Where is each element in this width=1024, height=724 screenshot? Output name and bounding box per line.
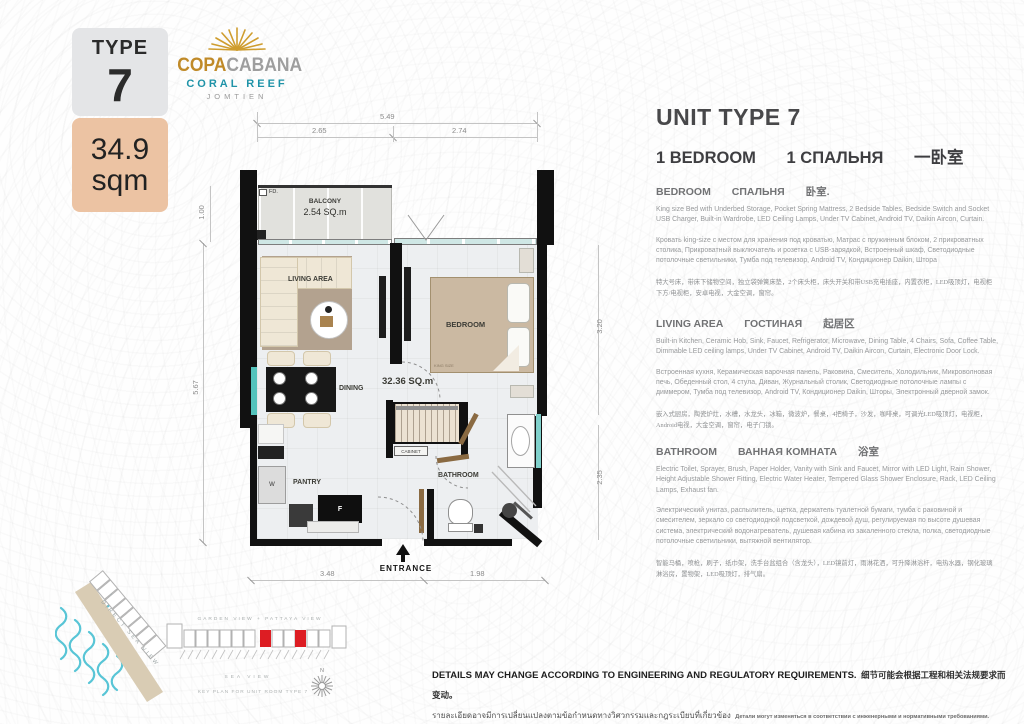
heading-ru: СПАЛЬНЯ <box>732 186 785 198</box>
dim-top-right: 2.74 <box>452 126 467 135</box>
section-text-en: Built-in Kitchen, Ceramic Hob, Sink, Fau… <box>656 337 998 358</box>
dim-right-bedroom: 3.20 <box>595 319 604 334</box>
disclaimer-ru: Детали могут изменяться в соответствии с… <box>735 714 989 720</box>
area-value: 34.9 <box>91 134 149 166</box>
dim-right-bathroom: 2.35 <box>595 470 604 485</box>
section-bathroom: BATHROOM ВАННАЯ КОМНАТА 浴室 Electric Toil… <box>656 444 998 580</box>
disclaimer-en: DETAILS MAY CHANGE ACCORDING TO ENGINEER… <box>432 670 857 681</box>
keyplan-caption: KEY PLAN FOR UNIT ROOM TYPE 7 <box>198 689 308 695</box>
heading-en: BEDROOM <box>656 186 711 198</box>
type-label: TYPE <box>92 37 148 60</box>
section-text-zh: 智能马桶，喷枪，刷子，纸巾架，洗手台盆组合（含龙头），LED镜前灯，雨淋花洒，可… <box>656 558 998 580</box>
section-heading: LIVING AREA ГОСТИНАЯ 起居区 <box>656 316 998 331</box>
dim-top-left: 2.65 <box>312 126 327 135</box>
type-number: 7 <box>107 62 133 108</box>
heading-zh: 浴室 <box>858 446 879 458</box>
building-row-horizontal <box>167 624 346 648</box>
section-text-en: Electric Toilet, Sprayer, Brush, Paper H… <box>656 465 998 496</box>
section-living-area: LIVING AREA ГОСТИНАЯ 起居区 Built-in Kitche… <box>656 316 998 431</box>
dim-ext <box>393 126 394 142</box>
dim-line <box>257 123 537 124</box>
bathroom-door-arc <box>436 456 468 488</box>
shower-glass <box>492 466 536 512</box>
section-text-zh: 嵌入式厨房，陶瓷炉灶，水槽，水龙头，冰箱，微波炉，餐桌，4把椅子，沙发，咖啡桌，… <box>656 409 998 431</box>
logo-name-silver: CABANA <box>226 55 302 76</box>
entrance-door-arc <box>378 497 423 542</box>
garden-view-label: GARDEN VIEW + PATTAYA VIEW <box>198 616 323 622</box>
logo-jomtien: JOMTIEN <box>172 92 302 101</box>
unit-type-badge: TYPE 7 <box>72 28 168 116</box>
dim-line <box>257 137 393 138</box>
building-hatch <box>180 650 329 659</box>
sunburst-icon <box>172 26 302 52</box>
key-plan: DIRECT SEA VIEW GARDEN VIEW + PATTAYA VI… <box>55 568 405 724</box>
dim-left-main: 5.67 <box>191 380 200 395</box>
subtitle-ru: 1 СПАЛЬНЯ <box>787 149 884 167</box>
unit-subtitle: 1 BEDROOM 1 СПАЛЬНЯ 一卧室 <box>656 144 990 168</box>
heading-ru: ВАННАЯ КОМНАТА <box>738 446 837 458</box>
bedroom-door-arc <box>402 362 440 400</box>
entrance-arrow-stem <box>401 554 405 562</box>
disclaimer: DETAILS MAY CHANGE ACCORDING TO ENGINEER… <box>432 664 1007 724</box>
sea-view-label: SEA VIEW <box>225 674 272 680</box>
area-unit: sqm <box>92 165 149 197</box>
plan-annotations <box>240 170 560 580</box>
highlighted-unit <box>295 630 306 647</box>
disclaimer-line1: DETAILS MAY CHANGE ACCORDING TO ENGINEER… <box>432 664 1007 704</box>
dim-line <box>393 137 537 138</box>
logo-coral-reef: CORAL REEF <box>172 78 302 90</box>
dim-bottom-right: 1.98 <box>470 569 485 578</box>
compass-n-label: N <box>320 668 324 674</box>
section-text-en: King size Bed with Underbed Storage, Poc… <box>656 205 998 226</box>
heading-zh: 卧室. <box>806 186 830 198</box>
brand-logo: COPACABANA CORAL REEF JOMTIEN <box>172 26 302 112</box>
section-text-ru: Встроенная кухня, Керамическая варочная … <box>656 368 998 399</box>
section-text-ru: Электрический унитаз, распылитель, щетка… <box>656 506 998 547</box>
section-heading: BATHROOM ВАННАЯ КОМНАТА 浴室 <box>656 444 998 459</box>
unit-area-badge: 34.9 sqm <box>72 118 168 212</box>
section-bedroom: BEDROOM СПАЛЬНЯ 卧室. King size Bed with U… <box>656 184 998 299</box>
disclaimer-line2: รายละเอียดอาจมีการเปลี่ยนแปลงตามข้อกำหนด… <box>432 704 1007 724</box>
heading-ru: ГОСТИНАЯ <box>744 318 802 330</box>
logo-name-gold: COPA <box>177 55 226 76</box>
section-text-ru: Кровать king-size с местом для хранения … <box>656 236 998 267</box>
section-heading: BEDROOM СПАЛЬНЯ 卧室. <box>656 184 998 199</box>
dim-ext <box>257 112 258 142</box>
brochure-page: TYPE 7 34.9 sqm COPACABANA CORAL REEF JO… <box>0 0 1024 724</box>
subtitle-zh: 一卧室 <box>914 149 964 167</box>
dim-ext <box>537 112 538 142</box>
dim-top-total: 5.49 <box>380 112 395 121</box>
window-mark <box>408 215 444 240</box>
dim-left-balcony: 1.00 <box>197 205 206 220</box>
dim-line <box>210 186 211 242</box>
dim-line <box>203 243 204 543</box>
compass-icon: N <box>311 668 333 697</box>
logo-name: COPACABANA <box>177 55 297 77</box>
heading-en: LIVING AREA <box>656 318 723 330</box>
subtitle-en: 1 BEDROOM <box>656 149 756 167</box>
section-text-zh: 特大号床，带床下储物空间，独立袋弹簧床垫，2个床头柜，床头开关和带USB充电插座… <box>656 277 998 299</box>
highlighted-unit <box>260 630 271 647</box>
page-title: UNIT TYPE 7 <box>656 104 801 131</box>
dim-line <box>424 580 545 581</box>
disclaimer-th: รายละเอียดอาจมีการเปลี่ยนแปลงตามข้อกำหนด… <box>432 711 731 720</box>
heading-en: BATHROOM <box>656 446 717 458</box>
heading-zh: 起居区 <box>823 318 855 330</box>
